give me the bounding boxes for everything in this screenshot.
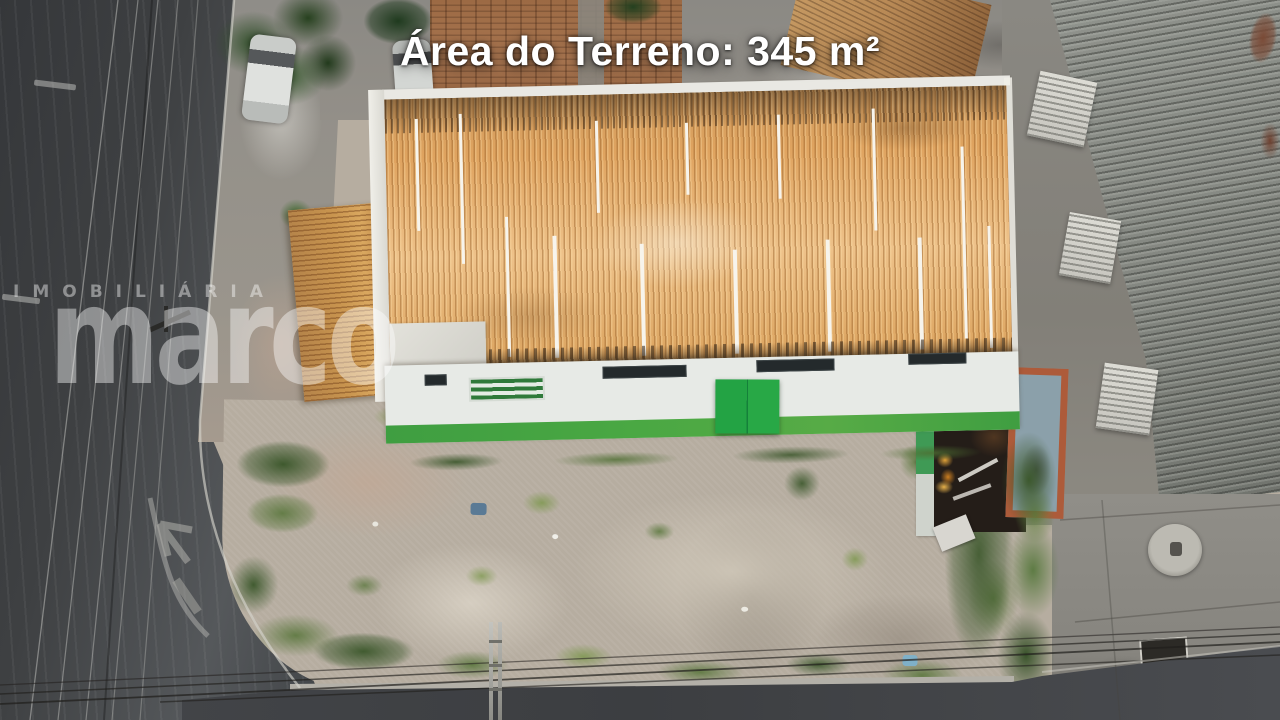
pole-rung [489, 640, 502, 643]
utility-pole [489, 622, 503, 720]
pole-rung [489, 664, 502, 667]
aerial-photo: marco IMOBILIÁRIA Área do Terreno: 345 m… [0, 0, 1280, 720]
pole-rail [489, 622, 493, 720]
pole-rung [489, 688, 502, 691]
watermark-subtitle: IMOBILIÁRIA [0, 282, 276, 302]
pole-rail [498, 622, 502, 720]
land-area-label: Área do Terreno: 345 m² [0, 28, 1280, 75]
